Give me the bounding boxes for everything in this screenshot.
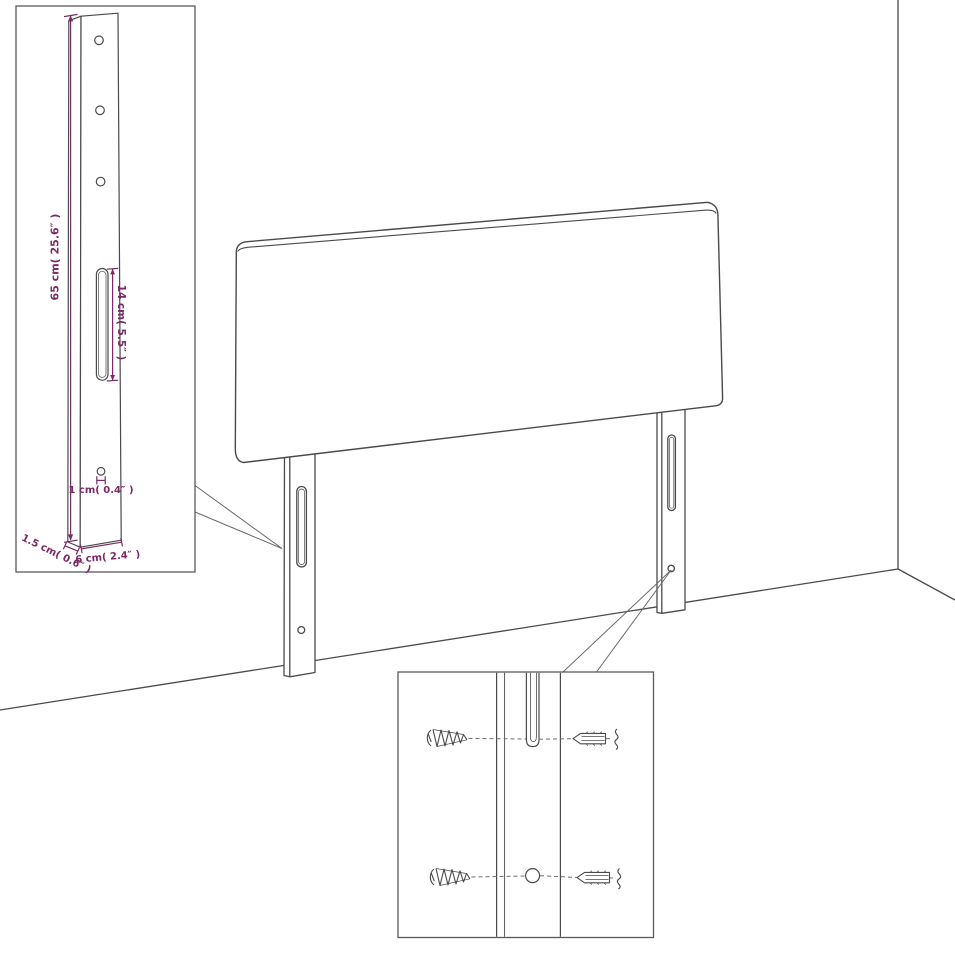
headboard-panel <box>235 202 722 462</box>
mounting-detail-inset-border <box>398 672 654 938</box>
label-leg-height: 65 cm( 25.6″ ) <box>49 214 62 301</box>
assembly-diagram: 65 cm( 25.6″ ) 14 cm( 5.5″ ) 1 cm( 0.4″ … <box>0 0 955 955</box>
headboard-outline <box>235 202 722 462</box>
floor-line-right <box>898 569 955 600</box>
diagram-canvas: 65 cm( 25.6″ ) 14 cm( 5.5″ ) 1 cm( 0.4″ … <box>0 0 955 955</box>
detail-callout-left <box>195 486 282 549</box>
headboard-leg-left <box>284 450 315 677</box>
leg-side-face <box>68 16 81 547</box>
mounting-detail-inset <box>398 672 654 938</box>
label-hole-diameter: 1 cm( 0.4″ ) <box>68 485 133 496</box>
headboard-leg-right <box>657 403 685 613</box>
label-slot-length: 14 cm( 5.5″ ) <box>115 285 127 361</box>
detail-callout-right <box>563 570 671 672</box>
leg-detail-inset: 65 cm( 25.6″ ) 14 cm( 5.5″ ) 1 cm( 0.4″ … <box>16 6 195 576</box>
